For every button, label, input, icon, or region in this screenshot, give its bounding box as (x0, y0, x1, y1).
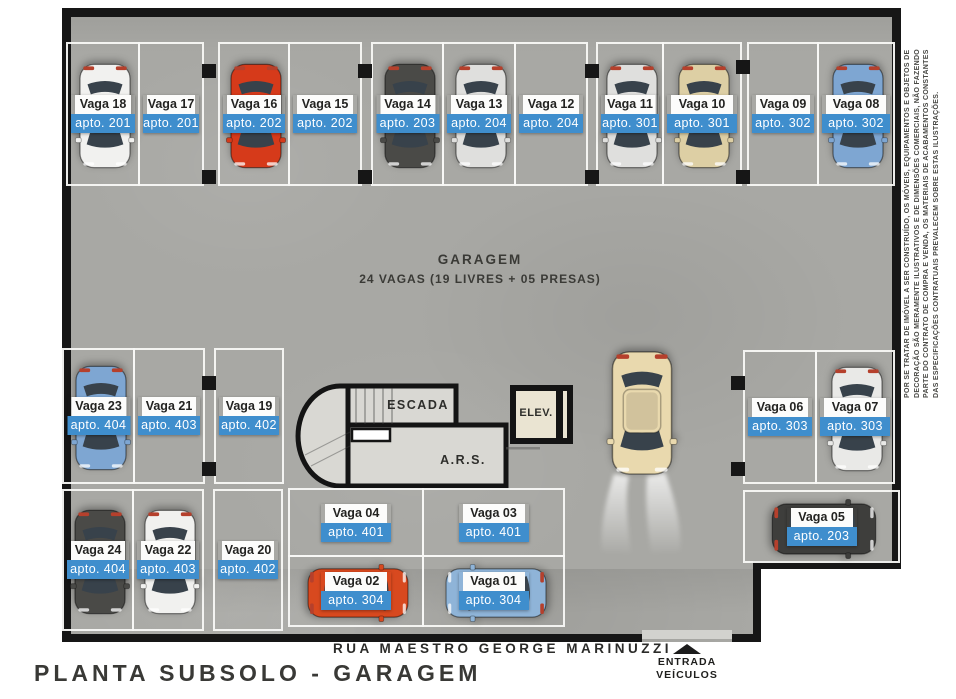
spot-label: Vaga 18apto. 201 (71, 95, 135, 133)
driving-car (604, 348, 680, 478)
parking-spot-vaga-19: Vaga 19apto. 402 (214, 348, 284, 484)
parking-spot-vaga-16: Vaga 16apto. 202 (218, 42, 290, 186)
parking-spot-vaga-12: Vaga 12apto. 204 (514, 42, 588, 186)
spot-apartment: apto. 303 (748, 417, 812, 436)
spot-label: Vaga 24apto. 404 (67, 541, 129, 579)
parking-spot-vaga-04: Vaga 04apto. 401 (288, 488, 424, 557)
spot-number: Vaga 23 (71, 397, 126, 416)
spot-label: Vaga 03apto. 401 (459, 504, 529, 542)
spot-number: Vaga 12 (523, 95, 579, 114)
spot-label: Vaga 04apto. 401 (321, 504, 391, 542)
structural-column (731, 462, 745, 476)
structural-column (202, 170, 216, 184)
disclaimer-line: PARTE DO CONTRATO DE COMPRA E VENDA, OS … (922, 6, 932, 398)
spot-apartment: apto. 304 (459, 591, 529, 610)
parking-spot-vaga-03: Vaga 03apto. 401 (422, 488, 565, 557)
street-name: RUA MAESTRO GEORGE MARINUZZI (330, 641, 675, 656)
structural-column (202, 64, 216, 78)
parking-spot-vaga-07: Vaga 07apto. 303 (815, 350, 895, 484)
parking-spot-vaga-02: Vaga 02apto. 304 (288, 555, 424, 627)
parking-spot-vaga-21: Vaga 21apto. 403 (133, 348, 205, 484)
spot-number: Vaga 20 (222, 541, 274, 560)
parking-spot-vaga-15: Vaga 15apto. 202 (288, 42, 362, 186)
parking-spot-vaga-20: Vaga 20apto. 402 (213, 489, 283, 631)
spot-label: Vaga 07apto. 303 (820, 398, 890, 436)
spot-apartment: apto. 301 (601, 114, 659, 133)
spot-label: Vaga 17apto. 201 (143, 95, 199, 133)
spot-label: Vaga 01apto. 304 (459, 572, 529, 610)
garage-caption-title: GARAGEM (300, 252, 660, 267)
spot-apartment: apto. 204 (447, 114, 511, 133)
spot-number: Vaga 02 (325, 572, 387, 591)
elevator-label: ELEV. (514, 407, 558, 419)
spot-number: Vaga 24 (71, 541, 125, 560)
spot-label: Vaga 02apto. 304 (321, 572, 391, 610)
spot-number: Vaga 19 (223, 397, 275, 416)
parking-spot-vaga-09: Vaga 09apto. 302 (747, 42, 819, 186)
spot-label: Vaga 08apto. 302 (822, 95, 890, 133)
spot-apartment: apto. 201 (71, 114, 135, 133)
garage-caption-subtitle: 24 VAGAS (19 LIVRES + 05 PRESAS) (300, 272, 660, 286)
spot-apartment: apto. 302 (752, 114, 814, 133)
structural-column (736, 170, 750, 184)
spot-label: Vaga 11apto. 301 (601, 95, 659, 133)
spot-label: Vaga 16apto. 202 (223, 95, 285, 133)
spot-label: Vaga 14apto. 203 (376, 95, 439, 133)
parking-spot-vaga-18: Vaga 18apto. 201 (66, 42, 140, 186)
spot-number: Vaga 04 (325, 504, 387, 523)
spot-apartment: apto. 204 (519, 114, 583, 133)
garage-caption: GARAGEM 24 VAGAS (19 LIVRES + 05 PRESAS) (300, 252, 660, 286)
spot-number: Vaga 16 (227, 95, 281, 114)
spot-number: Vaga 06 (752, 398, 808, 417)
structural-column (202, 376, 216, 390)
spot-label: Vaga 13apto. 204 (447, 95, 511, 133)
spot-number: Vaga 08 (826, 95, 886, 114)
spot-number: Vaga 09 (756, 95, 810, 114)
structural-column (585, 64, 599, 78)
spot-apartment: apto. 404 (67, 560, 129, 579)
spot-number: Vaga 17 (147, 95, 195, 114)
spot-number: Vaga 07 (824, 398, 886, 417)
spot-apartment: apto. 203 (787, 527, 857, 546)
spot-number: Vaga 03 (463, 504, 525, 523)
spot-apartment: apto. 402 (218, 560, 278, 579)
parking-spot-vaga-14: Vaga 14apto. 203 (371, 42, 444, 186)
parking-spot-vaga-17: Vaga 17apto. 201 (138, 42, 204, 186)
ars-label: A.R.S. (420, 453, 506, 467)
parking-spot-vaga-06: Vaga 06apto. 303 (743, 350, 817, 484)
stairs-label: ESCADA (380, 398, 456, 412)
spot-apartment: apto. 202 (223, 114, 285, 133)
spot-number: Vaga 22 (141, 541, 195, 560)
spot-label: Vaga 06apto. 303 (748, 398, 812, 436)
spot-apartment: apto. 402 (219, 416, 279, 435)
spot-apartment: apto. 404 (67, 416, 130, 435)
spot-label: Vaga 22apto. 403 (137, 541, 199, 579)
structural-column (202, 462, 216, 476)
spot-apartment: apto. 403 (138, 416, 200, 435)
spot-number: Vaga 18 (75, 95, 131, 114)
spot-number: Vaga 21 (142, 397, 196, 416)
parking-spot-vaga-13: Vaga 13apto. 204 (442, 42, 516, 186)
parking-stalls-layer: Vaga 18apto. 201Vaga 17apto. 201 Vaga 16… (0, 0, 956, 699)
structural-column (585, 170, 599, 184)
structural-column (736, 60, 750, 74)
spot-number: Vaga 10 (671, 95, 733, 114)
spot-number: Vaga 01 (463, 572, 525, 591)
spot-number: Vaga 05 (791, 508, 853, 527)
spot-apartment: apto. 401 (321, 523, 391, 542)
spot-apartment: apto. 201 (143, 114, 199, 133)
parking-spot-vaga-11: Vaga 11apto. 301 (596, 42, 664, 186)
disclaimer-line: DAS ESPECIFICAÇÕES CONTRATUAIS PREVALECE… (932, 6, 942, 398)
spot-label: Vaga 20apto. 402 (218, 541, 278, 579)
spot-apartment: apto. 301 (667, 114, 737, 133)
spot-label: Vaga 15apto. 202 (293, 95, 357, 133)
structural-column (358, 170, 372, 184)
spot-apartment: apto. 403 (137, 560, 199, 579)
structural-column (731, 376, 745, 390)
spot-apartment: apto. 203 (376, 114, 439, 133)
spot-label: Vaga 12apto. 204 (519, 95, 583, 133)
spot-number: Vaga 15 (297, 95, 353, 114)
spot-number: Vaga 13 (451, 95, 507, 114)
vehicle-entrance-sign: ENTRADA VEÍCULOS (645, 644, 729, 682)
spot-apartment: apto. 401 (459, 523, 529, 542)
structural-column (358, 64, 372, 78)
spot-label: Vaga 23apto. 404 (67, 397, 130, 435)
spot-label: Vaga 21apto. 403 (138, 397, 200, 435)
parking-spot-vaga-22: Vaga 22apto. 403 (132, 489, 204, 631)
spot-label: Vaga 05apto. 203 (787, 508, 857, 546)
parking-spot-vaga-23: Vaga 23apto. 404 (62, 348, 135, 484)
entrance-line1: ENTRADA (645, 656, 729, 669)
disclaimer-text: POR SE TRATAR DE IMÓVEL A SER CONSTRUÍDO… (903, 6, 943, 398)
parking-spot-vaga-10: Vaga 10apto. 301 (662, 42, 742, 186)
disclaimer-line: POR SE TRATAR DE IMÓVEL A SER CONSTRUÍDO… (903, 6, 913, 398)
spot-label: Vaga 19apto. 402 (219, 397, 279, 435)
parking-spot-vaga-01: Vaga 01apto. 304 (422, 555, 565, 627)
parking-spot-vaga-24: Vaga 24apto. 404 (62, 489, 134, 631)
disclaimer-line: DECORAÇÃO SÃO MERAMENTE ILUSTRATIVOS E D… (913, 6, 923, 398)
page-title: PLANTA SUBSOLO - GARAGEM (34, 660, 481, 687)
parking-spot-vaga-05: Vaga 05apto. 203 (743, 490, 900, 563)
floor-plan-canvas: Vaga 18apto. 201Vaga 17apto. 201 Vaga 16… (0, 0, 956, 699)
entrance-arrow-icon (673, 644, 701, 654)
spot-apartment: apto. 302 (822, 114, 890, 133)
parking-spot-vaga-08: Vaga 08apto. 302 (817, 42, 895, 186)
spot-apartment: apto. 304 (321, 591, 391, 610)
spot-number: Vaga 11 (605, 95, 655, 114)
spot-number: Vaga 14 (380, 95, 435, 114)
spot-label: Vaga 09apto. 302 (752, 95, 814, 133)
spot-apartment: apto. 202 (293, 114, 357, 133)
spot-label: Vaga 10apto. 301 (667, 95, 737, 133)
entrance-line2: VEÍCULOS (645, 669, 729, 682)
spot-apartment: apto. 303 (820, 417, 890, 436)
